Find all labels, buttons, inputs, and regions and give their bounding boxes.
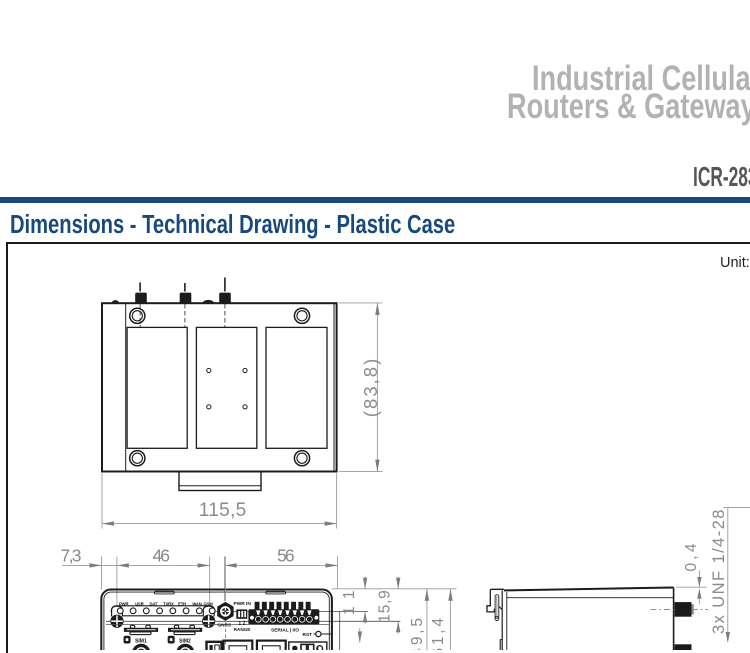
svg-text:49,5: 49,5 xyxy=(409,618,426,650)
svg-text:11: 11 xyxy=(341,591,358,616)
svg-text:SIM2: SIM2 xyxy=(179,638,191,644)
svg-text:115,5: 115,5 xyxy=(199,500,247,521)
svg-text:SIM1: SIM1 xyxy=(135,638,147,644)
svg-text:RANGE: RANGE xyxy=(234,627,251,632)
svg-text:61,4: 61,4 xyxy=(430,618,447,650)
svg-text:SERIAL | I/O: SERIAL | I/O xyxy=(271,628,299,634)
svg-text:46: 46 xyxy=(152,546,170,566)
svg-text:RST: RST xyxy=(302,632,312,638)
svg-text:(83,8): (83,8) xyxy=(360,359,381,418)
svg-text:0,4: 0,4 xyxy=(683,543,700,571)
svg-text:GNSS: GNSS xyxy=(217,623,231,629)
svg-text:7,3: 7,3 xyxy=(61,546,82,566)
svg-text:3x UNF 1/4-28: 3x UNF 1/4-28 xyxy=(710,510,728,635)
svg-text:15,9: 15,9 xyxy=(376,590,393,623)
svg-text:56: 56 xyxy=(277,546,295,566)
svg-text:PWR IN: PWR IN xyxy=(234,601,252,607)
